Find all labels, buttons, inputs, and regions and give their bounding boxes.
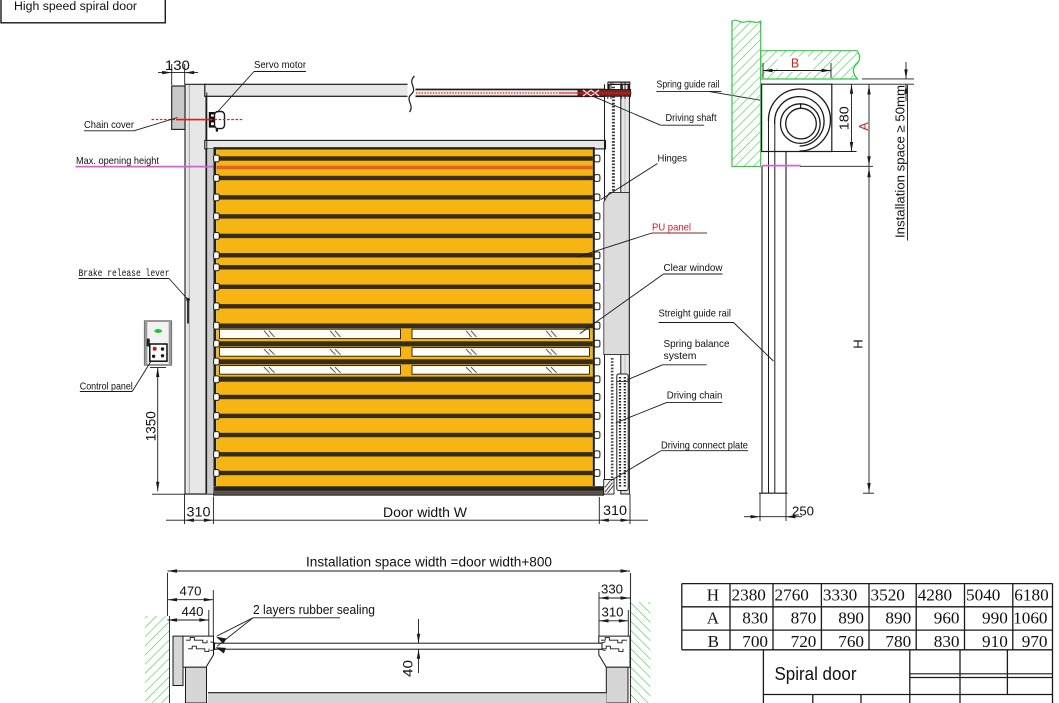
svg-text:310: 310 xyxy=(187,504,211,520)
svg-text:Chain cover: Chain cover xyxy=(84,119,134,131)
svg-text:A: A xyxy=(857,122,871,131)
svg-text:Control panel: Control panel xyxy=(80,381,133,393)
svg-text:830: 830 xyxy=(742,609,768,628)
svg-text:310: 310 xyxy=(603,502,627,518)
svg-text:330: 330 xyxy=(601,582,623,597)
svg-text:760: 760 xyxy=(838,632,864,651)
svg-text:H: H xyxy=(707,586,719,605)
svg-text:700: 700 xyxy=(742,632,768,651)
svg-text:5040: 5040 xyxy=(966,586,1000,605)
svg-text:180: 180 xyxy=(838,106,852,130)
svg-text:2380: 2380 xyxy=(732,586,766,605)
svg-text:Clear window: Clear window xyxy=(664,262,723,274)
svg-text:Door width W: Door width W xyxy=(383,505,467,520)
svg-text:B: B xyxy=(708,632,719,651)
svg-text:780: 780 xyxy=(885,632,911,651)
svg-text:870: 870 xyxy=(791,609,817,628)
svg-text:A: A xyxy=(707,609,720,628)
svg-text:40: 40 xyxy=(401,660,416,677)
svg-text:250: 250 xyxy=(792,504,814,519)
svg-text:Driving chain: Driving chain xyxy=(667,390,723,402)
svg-text:Spring balance: Spring balance xyxy=(664,338,730,350)
svg-text:130: 130 xyxy=(165,57,190,73)
svg-text:Streight guide rail: Streight guide rail xyxy=(659,308,732,320)
svg-text:Spiral door: Spiral door xyxy=(775,663,857,684)
svg-text:960: 960 xyxy=(934,609,960,628)
svg-text:Installation space width =door: Installation space width =door width+800 xyxy=(306,555,552,570)
svg-text:310: 310 xyxy=(602,605,624,620)
svg-text:1350: 1350 xyxy=(143,411,159,441)
svg-text:4280: 4280 xyxy=(918,586,952,605)
svg-text:970: 970 xyxy=(1022,632,1048,651)
svg-text:440: 440 xyxy=(182,604,204,619)
svg-text:1060: 1060 xyxy=(1013,609,1047,628)
svg-text:720: 720 xyxy=(791,632,817,651)
svg-text:3520: 3520 xyxy=(871,586,905,605)
svg-text:6180: 6180 xyxy=(1014,586,1048,605)
svg-text:2 layers rubber sealing: 2 layers rubber sealing xyxy=(253,603,375,617)
svg-text:910: 910 xyxy=(982,632,1008,651)
svg-text:990: 990 xyxy=(982,609,1008,628)
svg-text:3330: 3330 xyxy=(823,586,857,605)
svg-text:2760: 2760 xyxy=(775,586,809,605)
svg-text:830: 830 xyxy=(934,632,960,651)
svg-text:Driving shaft: Driving shaft xyxy=(666,112,717,124)
svg-text:Max. opening height: Max. opening height xyxy=(76,155,159,167)
svg-text:890: 890 xyxy=(838,609,864,628)
svg-text:B: B xyxy=(791,57,799,71)
svg-text:system: system xyxy=(664,350,697,362)
svg-text:Servo motor: Servo motor xyxy=(254,59,306,71)
svg-text:High speed spiral door: High speed spiral door xyxy=(14,0,137,13)
svg-text:470: 470 xyxy=(180,584,202,599)
svg-text:Installation space ≥ 50mm: Installation space ≥ 50mm xyxy=(894,85,908,238)
svg-text:Hinges: Hinges xyxy=(658,153,688,165)
svg-text:Spring guide rail: Spring guide rail xyxy=(657,79,720,91)
svg-text:Driving connect plate: Driving connect plate xyxy=(661,439,748,451)
svg-text:H: H xyxy=(851,339,866,348)
svg-text:PU panel: PU panel xyxy=(652,222,691,234)
svg-text:890: 890 xyxy=(885,609,911,628)
